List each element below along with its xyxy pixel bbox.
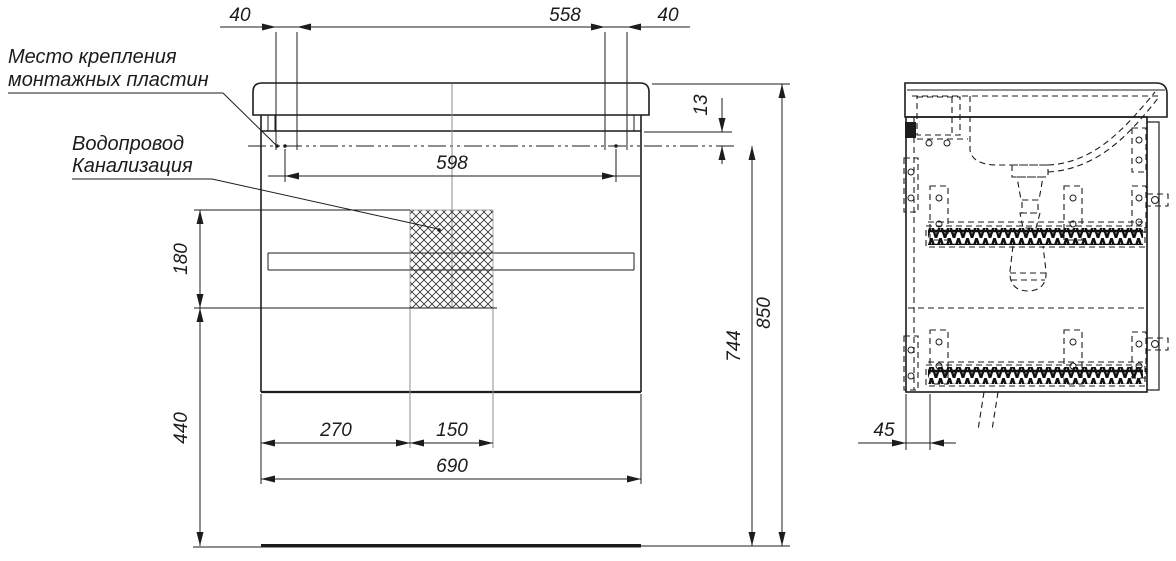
front-edge-clips — [1132, 128, 1168, 378]
countertop-front — [253, 83, 649, 115]
dim-hatch-width-label: 150 — [436, 420, 468, 441]
dim-apron-drop: 13 — [644, 94, 732, 164]
dim-lower-height: 440 — [171, 308, 204, 546]
drawer-rail-upper — [926, 186, 1145, 247]
dim-top-offset-right-label: 40 — [657, 5, 679, 26]
dim-inner-width: 598 — [268, 144, 640, 182]
dim-top-offset-left-label: 40 — [229, 5, 251, 26]
dim-body-height-label: 744 — [724, 330, 745, 362]
side-view — [904, 83, 1168, 430]
dim-apron-drop-label: 13 — [691, 94, 712, 116]
dim-hatch-offset-width: 270 150 — [261, 420, 493, 447]
front-view — [193, 83, 790, 548]
drawer-rail-lower — [926, 330, 1145, 386]
dim-total-height-label: 850 — [754, 297, 775, 329]
dim-top: 40 558 40 — [220, 5, 690, 150]
dim-cabinet-width-label: 690 — [436, 456, 468, 477]
dim-hatch-height-label: 180 — [171, 243, 192, 275]
annotation-plumbing-line2: Канализация — [72, 155, 193, 177]
vanity-technical-drawing: 40 558 40 598 13 180 440 — [0, 0, 1176, 561]
dim-side-back-offset-label: 45 — [873, 420, 895, 441]
annotation-mounting-line1: Место крепления — [8, 46, 177, 68]
plumbing-hatch-zone — [410, 210, 493, 308]
dim-cabinet-width: 690 — [261, 456, 641, 483]
drain-pipes-below — [978, 392, 998, 430]
cabinet-carcass-side — [906, 117, 1147, 392]
annotation-plumbing: Водопровод Канализация — [72, 133, 441, 232]
annotation-mounting-line2: монтажных пластин — [8, 69, 209, 91]
dim-side-back-offset: 45 — [858, 394, 956, 450]
dim-top-span-label: 558 — [549, 5, 581, 26]
floor-line — [261, 544, 641, 548]
dim-body-height: 744 — [724, 146, 756, 546]
dim-lower-height-label: 440 — [171, 412, 192, 444]
countertop-side — [905, 83, 1167, 117]
annotation-plumbing-line1: Водопровод — [72, 133, 184, 155]
leader-plumbing — [212, 179, 438, 229]
countertop-support-stubs — [268, 115, 634, 131]
dim-inner-width-label: 598 — [436, 153, 468, 174]
drawing-page: 40 558 40 598 13 180 440 — [0, 0, 1176, 561]
dim-hatch-offset-label: 270 — [319, 420, 352, 441]
basin-hidden-outline — [912, 92, 1160, 172]
